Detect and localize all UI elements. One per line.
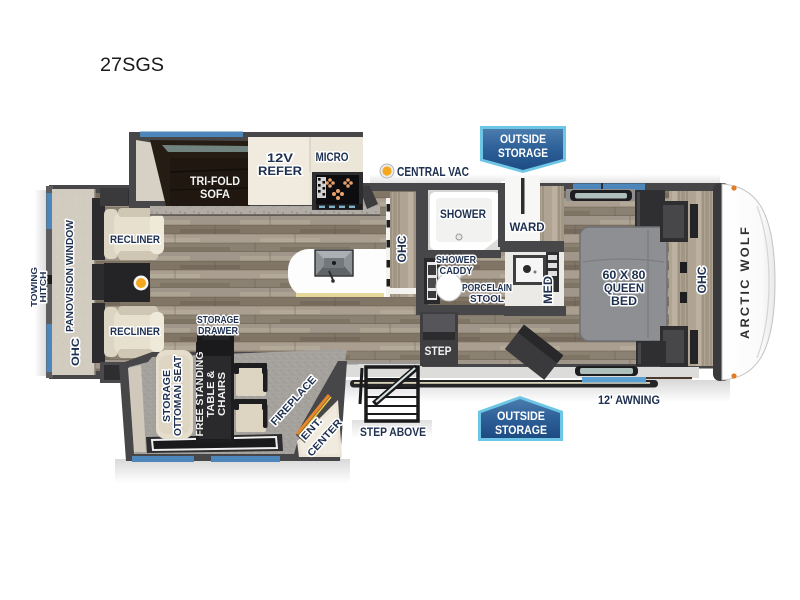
svg-text:RECLINER: RECLINER [110, 234, 160, 246]
svg-text:27SGS: 27SGS [100, 55, 164, 76]
svg-text:STOOL: STOOL [470, 293, 505, 305]
svg-text:SHOWER: SHOWER [440, 207, 486, 221]
svg-text:STORAGE: STORAGE [495, 425, 547, 437]
svg-text:OUTSIDE: OUTSIDE [497, 411, 545, 423]
svg-text:OUTSIDE: OUTSIDE [500, 134, 546, 146]
svg-text:TRI-FOLD: TRI-FOLD [190, 176, 240, 188]
svg-text:STORAGE: STORAGE [498, 148, 548, 160]
svg-text:MED: MED [543, 276, 555, 304]
svg-text:STORAGE: STORAGE [162, 370, 173, 422]
svg-text:QUEEN: QUEEN [604, 281, 644, 295]
svg-text:OHC: OHC [397, 236, 409, 263]
svg-text:OHC: OHC [70, 338, 82, 366]
svg-text:CHAIRS: CHAIRS [217, 372, 228, 416]
svg-text:12' AWNING: 12' AWNING [598, 395, 660, 407]
svg-text:60 X 80: 60 X 80 [603, 268, 646, 282]
svg-text:OTTOMAN SEAT: OTTOMAN SEAT [173, 356, 184, 436]
svg-text:CADDY: CADDY [440, 265, 473, 277]
svg-text:CENTRAL VAC: CENTRAL VAC [397, 165, 469, 179]
svg-text:STEP ABOVE: STEP ABOVE [360, 427, 426, 439]
svg-text:SOFA: SOFA [200, 189, 230, 201]
svg-text:DRAWER: DRAWER [198, 325, 238, 337]
svg-text:FREE STANDING: FREE STANDING [195, 351, 206, 436]
svg-text:OHC: OHC [697, 267, 709, 294]
svg-text:REFER: REFER [258, 164, 302, 178]
svg-text:PANOVISION WINDOW: PANOVISION WINDOW [65, 219, 76, 332]
svg-text:BED: BED [611, 294, 637, 308]
svg-text:WARD: WARD [510, 220, 545, 234]
svg-text:ARCTIC WOLF: ARCTIC WOLF [740, 225, 752, 339]
svg-text:MICRO: MICRO [316, 152, 349, 164]
svg-text:STEP: STEP [425, 346, 452, 358]
svg-text:HITCH: HITCH [38, 272, 48, 303]
svg-text:12V: 12V [267, 151, 293, 165]
svg-text:RECLINER: RECLINER [110, 326, 160, 338]
svg-text:TABLE &: TABLE & [206, 371, 217, 418]
